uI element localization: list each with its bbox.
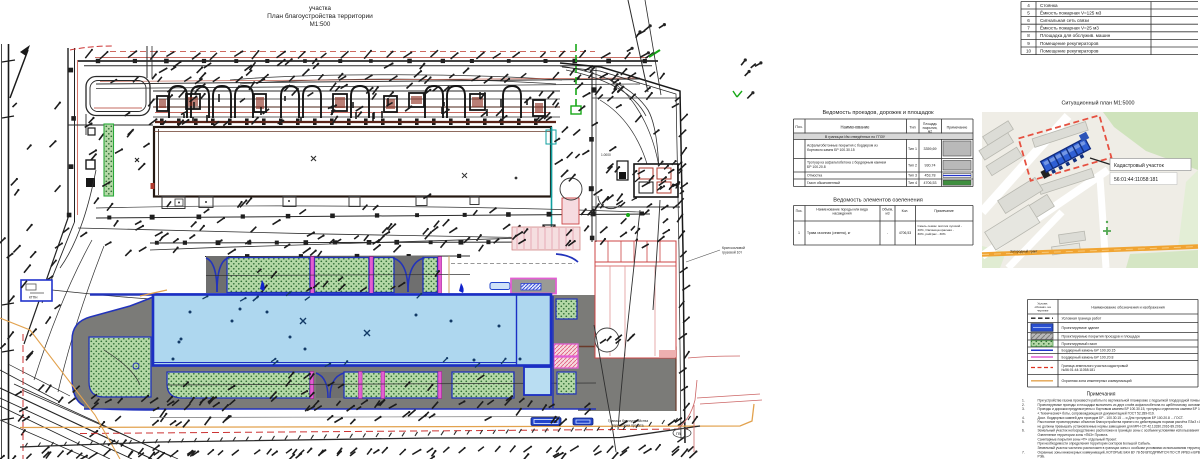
svg-text:М1:500: М1:500 (310, 21, 331, 28)
svg-text:6: 6 (1027, 18, 1030, 23)
svg-text:бортового камня БР 100.30.15: бортового камня БР 100.30.15 (807, 148, 855, 152)
svg-text:Поз.: Поз. (795, 125, 802, 129)
svg-text:Тротуар из асфальтобетона с бо: Тротуар из асфальтобетона с бордюрным ка… (807, 161, 887, 165)
svg-text:Стоянка: Стоянка (1040, 3, 1058, 8)
svg-text:Тип 4: Тип 4 (908, 181, 917, 185)
svg-text:4706,53: 4706,53 (899, 231, 911, 235)
svg-text:Ситуационный план М1:5000: Ситуационный план М1:5000 (1061, 100, 1134, 107)
svg-text:6.: 6. (1022, 429, 1025, 433)
svg-text:30%, райграс - 30%: 30%, райграс - 30% (918, 232, 946, 236)
svg-text:7.: 7. (1022, 450, 1025, 454)
svg-text:Ёмкость пожарная V=25 м3: Ёмкость пожарная V=25 м3 (1040, 25, 1099, 31)
svg-text:5: 5 (1027, 10, 1030, 15)
svg-text:ГВ: ГВ (676, 431, 681, 436)
svg-text:№56:01:44:11058:181: №56:01:44:11058:181 (1062, 368, 1096, 372)
svg-text:5.: 5. (1022, 420, 1025, 424)
svg-text:Наименование обозначения и изо: Наименование обозначения и изображения (1091, 306, 1164, 310)
svg-text:Газон обыкновенный: Газон обыкновенный (807, 181, 840, 185)
svg-text:Загородный тракт: Загородный тракт (1010, 250, 1038, 254)
svg-text:насаждения: насаждения (832, 212, 851, 216)
svg-text:Наименование: Наименование (840, 125, 870, 130)
svg-text:1.0000: 1.0000 (601, 153, 611, 157)
svg-text:План благоустройства территори: План благоустройства территории (267, 12, 373, 20)
svg-text:Проектируемые покрытия проездо: Проектируемые покрытия проездов и площад… (1062, 335, 1141, 339)
svg-text:Примечание: Примечание (947, 126, 968, 130)
svg-text:56:01:44:11058:181: 56:01:44:11058:181 (1114, 177, 1158, 183)
svg-text:Тип 3: Тип 3 (908, 174, 917, 178)
svg-text:4: 4 (1027, 3, 1030, 8)
svg-text:3359,69: 3359,69 (924, 147, 937, 151)
svg-text:БР 100.20.8: БР 100.20.8 (807, 165, 826, 169)
svg-text:Тип 1: Тип 1 (908, 147, 917, 151)
svg-text:Поз.: Поз. (796, 209, 803, 213)
svg-text:1: 1 (798, 231, 800, 235)
svg-text:грузовой 10т: грузовой 10т (722, 251, 742, 255)
svg-text:Земельный участок непосредстве: Земельный участок непосредственно распол… (1038, 429, 1200, 433)
svg-text:Сигнальная сеть связи: Сигнальная сеть связи (1040, 18, 1089, 23)
svg-text:3.: 3. (1022, 407, 1025, 411)
svg-text:Асфальтобетонные покрытия с бо: Асфальтобетонные покрытия с бордюром из (807, 144, 878, 148)
svg-text:Проектируемое здание: Проектируемое здание (1062, 326, 1100, 330)
svg-text:РЭБ.: РЭБ. (1038, 455, 1046, 459)
svg-text:чертеже: чертеже (1037, 309, 1049, 313)
svg-text:Ведомость проездов, дорожек и: Ведомость проездов, дорожек и площадок (822, 110, 934, 116)
svg-text:453,78: 453,78 (925, 174, 936, 178)
svg-text:Проезды и дорожки предусмотрен: Проезды и дорожки предусмотрены с бортов… (1038, 407, 1200, 411)
svg-text:7: 7 (1027, 26, 1030, 31)
svg-text:Ёмкость пожарная V=125 м3: Ёмкость пожарная V=125 м3 (1040, 9, 1102, 15)
svg-text:Ведомость элементов озеленения: Ведомость элементов озеленения (833, 198, 922, 204)
svg-text:9: 9 (1027, 41, 1030, 46)
svg-text:Проектируемый газон: Проектируемый газон (1062, 342, 1098, 346)
svg-text:Условная граница работ: Условная граница работ (1062, 317, 1102, 321)
svg-text:Бордюрный камень БР 100.20.8: Бордюрный камень БР 100.20.8 (1062, 355, 1114, 359)
svg-text:В границах Им отведённых по ГП: В границах Им отведённых по ГПЗУ (825, 135, 886, 139)
svg-text:Охранные зоны инженерных комму: Охранные зоны инженерных коммуникаций, К… (1038, 450, 1200, 454)
svg-text:Помещение рекуператоров: Помещение рекуператоров (1040, 48, 1099, 53)
svg-text:участка: участка (309, 5, 332, 12)
svg-text:Примечание: Примечание (934, 209, 954, 213)
svg-text:КТПН: КТПН (29, 296, 38, 300)
svg-text:Отмостка: Отмостка (807, 174, 822, 178)
svg-text:Кран козловой: Кран козловой (722, 246, 745, 250)
svg-text:8: 8 (1027, 33, 1030, 38)
svg-text:м3: м3 (886, 212, 890, 216)
svg-text:Трава газонная (семена), кг: Трава газонная (семена), кг (807, 231, 851, 235)
svg-text:10: 10 (1026, 48, 1032, 53)
svg-text:930,74: 930,74 (925, 164, 936, 168)
svg-text:Тип: Тип (909, 126, 915, 130)
svg-text:Помещение рекуператоров: Помещение рекуператоров (1040, 41, 1099, 46)
svg-text:Бордюрный камень БР 100.30.15: Бордюрный камень БР 100.30.15 (1062, 349, 1116, 353)
svg-text:Граница благоустройства: Граница благоустройства (608, 419, 648, 423)
svg-text:Кадастровый участок: Кадастровый участок (1114, 162, 1165, 169)
svg-text:Примечания: Примечания (1087, 392, 1116, 398)
svg-text:Площадка для обслужив. машин: Площадка для обслужив. машин (1040, 33, 1111, 38)
svg-text:м2: м2 (928, 129, 932, 133)
svg-text:территории проекта: территории проекта (612, 424, 644, 428)
svg-text:Охранная зона инженерных комму: Охранная зона инженерных коммуникаций (1062, 379, 1132, 383)
svg-text:Тип 2: Тип 2 (908, 164, 917, 168)
svg-text:4706,53: 4706,53 (924, 181, 937, 185)
svg-text:Кол.: Кол. (902, 209, 909, 213)
